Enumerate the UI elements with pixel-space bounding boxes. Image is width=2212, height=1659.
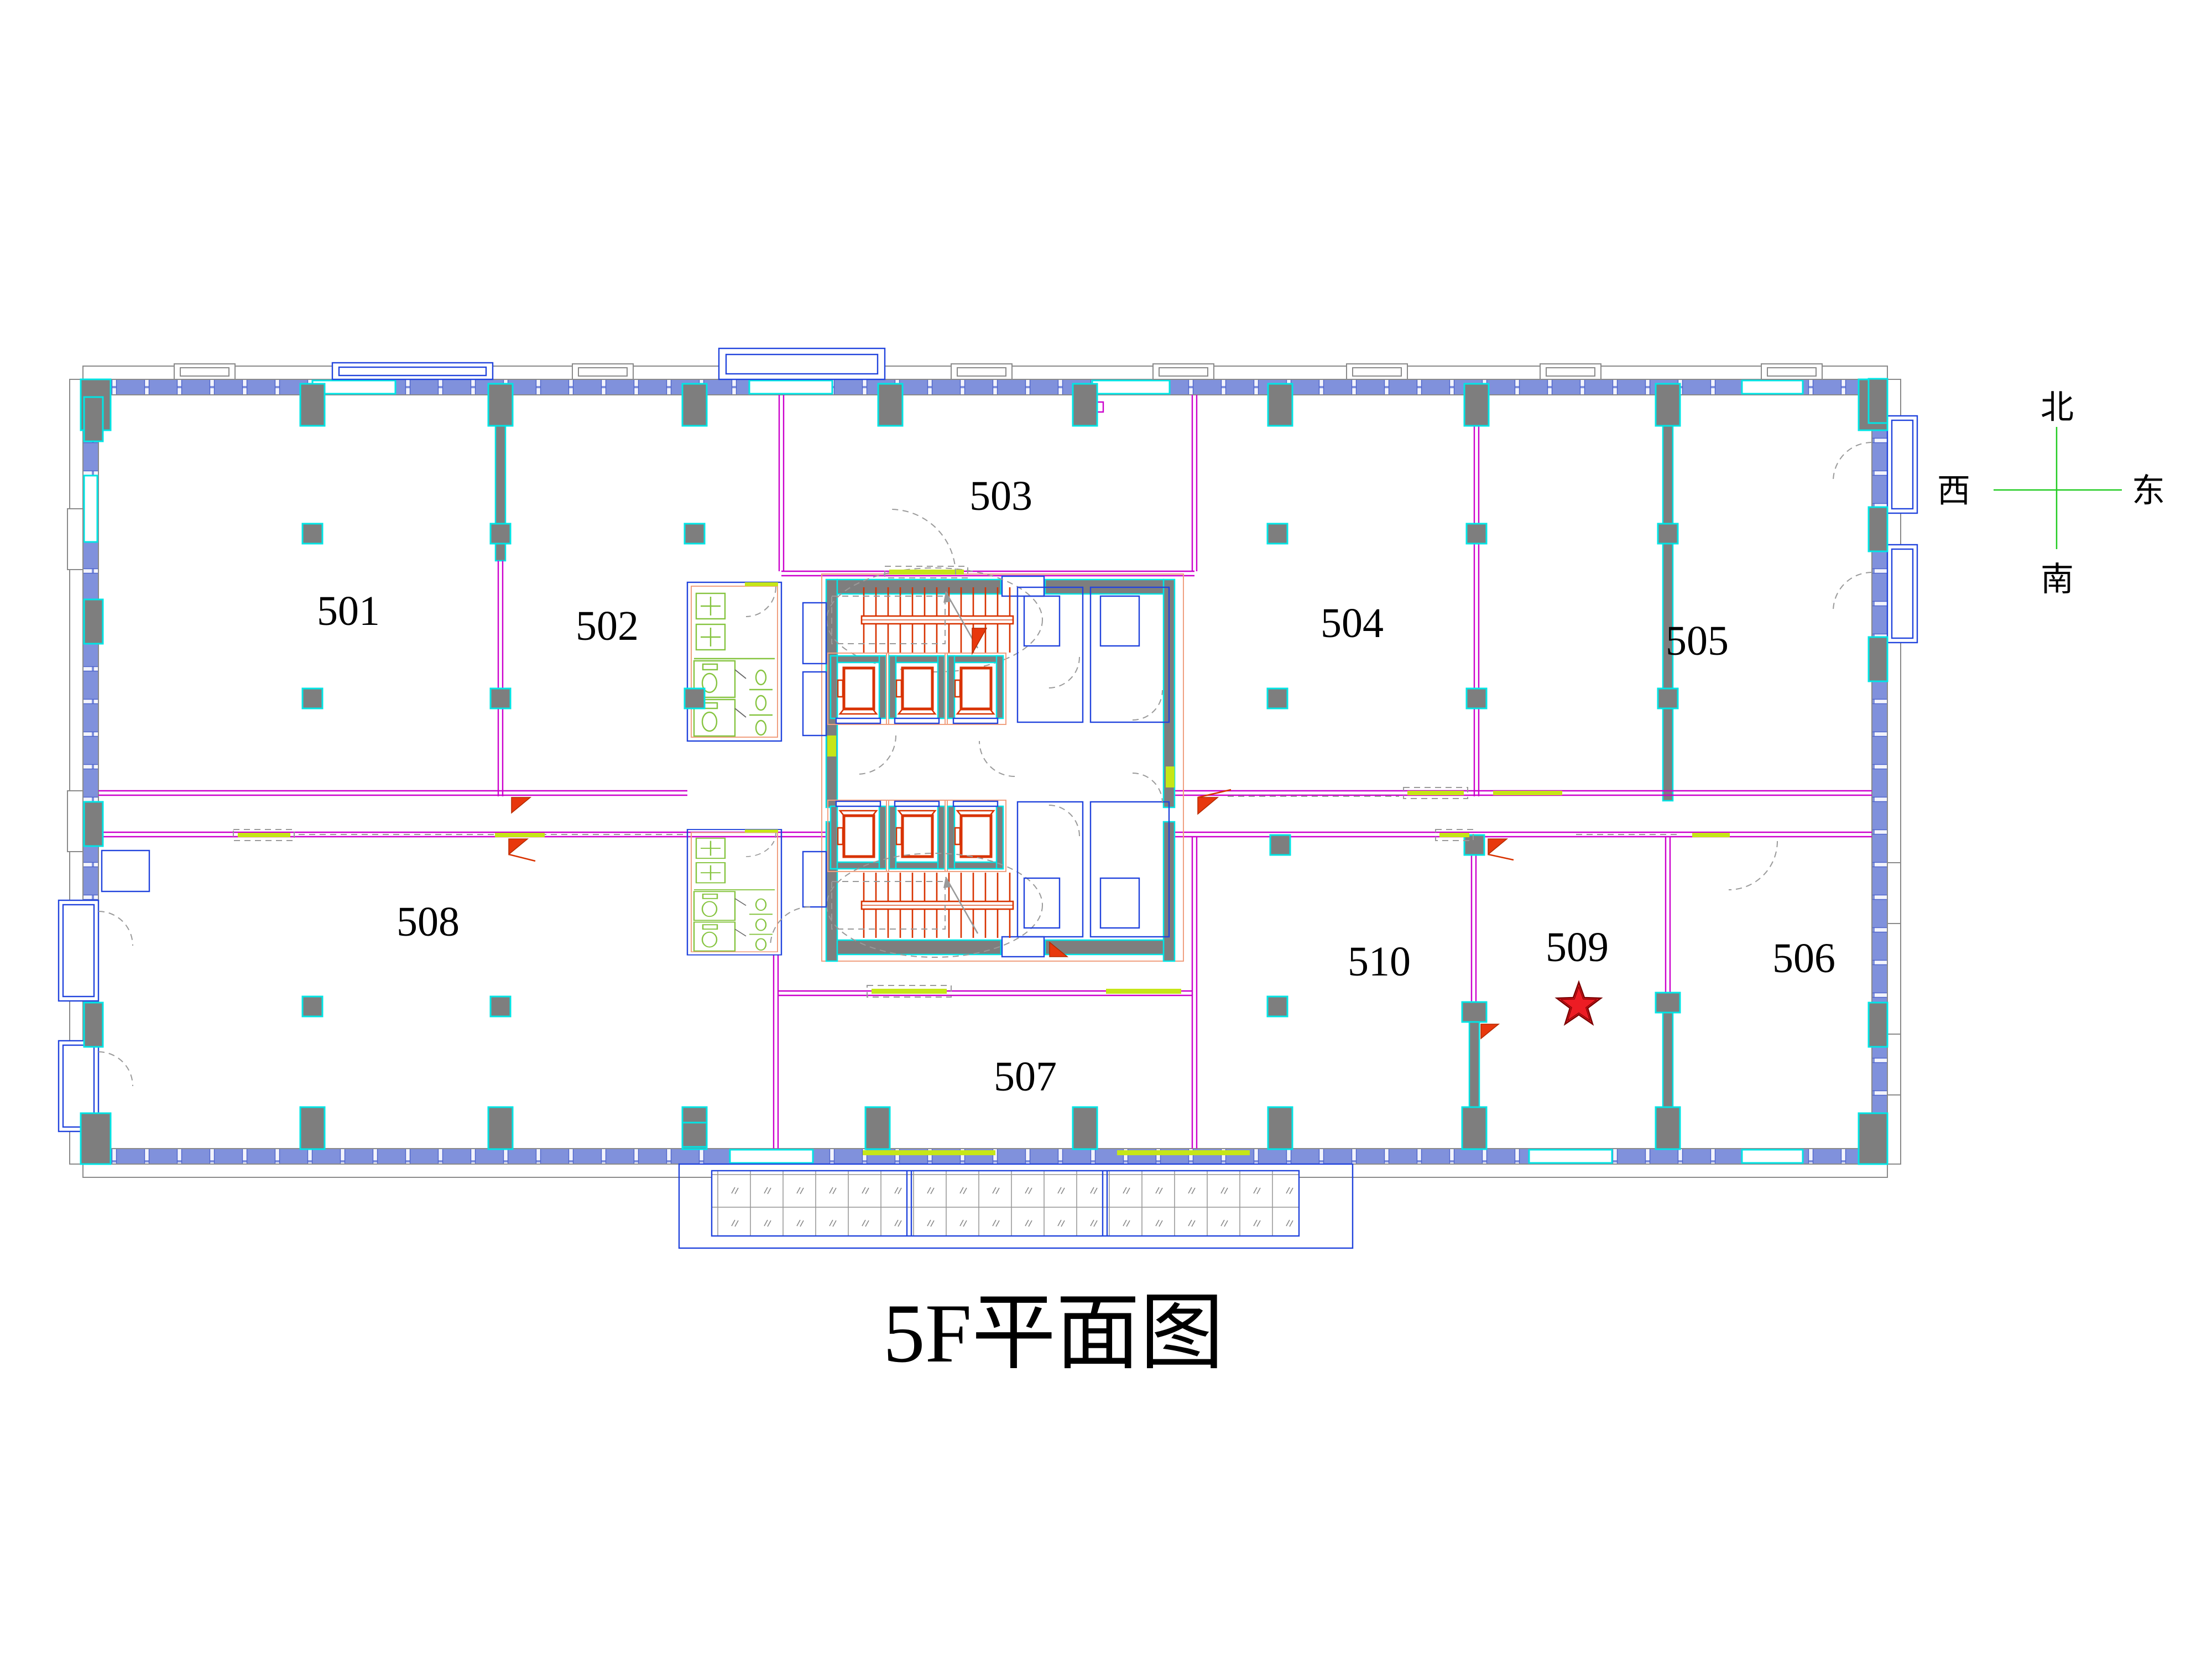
- room-label-502: 502: [576, 603, 639, 649]
- page-title: 5F平面图: [883, 1287, 1224, 1380]
- balcony-grid: [712, 1171, 1299, 1236]
- core-north-door: [1002, 576, 1044, 596]
- room-label-509: 509: [1546, 924, 1609, 971]
- wall-502-503: [779, 395, 784, 571]
- window-openings: [84, 380, 1803, 1163]
- floor-plan-page: 501 502 503 504 505 506 507 508 509 510 …: [0, 0, 2212, 1659]
- room-label-508: 508: [397, 899, 460, 945]
- compass-south-label: 南: [2041, 561, 2074, 598]
- compass: 北 南 西 东: [1937, 389, 2165, 598]
- room-label-505: 505: [1666, 618, 1729, 664]
- room-label-506: 506: [1772, 935, 1835, 982]
- wall-504-505: [1474, 395, 1479, 796]
- room-label-504: 504: [1321, 600, 1384, 646]
- compass-west-label: 西: [1937, 473, 1970, 509]
- washroom-south: [687, 830, 781, 955]
- wall-507-510: [1192, 837, 1197, 1149]
- washroom-north: [687, 582, 781, 741]
- room-label-507: 507: [994, 1053, 1057, 1100]
- elevators-upper: [828, 653, 1006, 724]
- shaft-boxes: [803, 603, 826, 907]
- wall-503-504: [1192, 395, 1197, 571]
- room-labels: 501 502 503 504 505 506 507 508 509 510: [317, 473, 1835, 1100]
- central-core: [822, 568, 1183, 961]
- room-label-510: 510: [1348, 938, 1411, 985]
- core-lobby: [827, 735, 1175, 787]
- south-balcony: [679, 1164, 1353, 1248]
- wall-510-509-upper: [1472, 837, 1476, 1002]
- compass-east-label: 东: [2132, 473, 2165, 509]
- building-envelope: [59, 348, 1917, 1659]
- elevators-lower: [828, 800, 1006, 872]
- star-marker: [1557, 982, 1601, 1024]
- wall-509-506-upper: [1666, 837, 1670, 995]
- corridor-north-west: [98, 791, 687, 795]
- wall-505-west: [1663, 395, 1673, 801]
- window-boxes: [67, 364, 1901, 1659]
- compass-north-label: 北: [2041, 389, 2074, 426]
- core-rooms-east: [1018, 587, 1169, 937]
- wall-508-507: [774, 954, 778, 1149]
- floor-plan-canvas: 501 502 503 504 505 506 507 508 509 510 …: [0, 0, 2212, 1659]
- wall-501-502-lower: [498, 561, 503, 796]
- core-south-door: [1002, 937, 1044, 957]
- doors: [98, 442, 1872, 1155]
- room-label-501: 501: [317, 588, 380, 634]
- room-label-503: 503: [969, 473, 1032, 519]
